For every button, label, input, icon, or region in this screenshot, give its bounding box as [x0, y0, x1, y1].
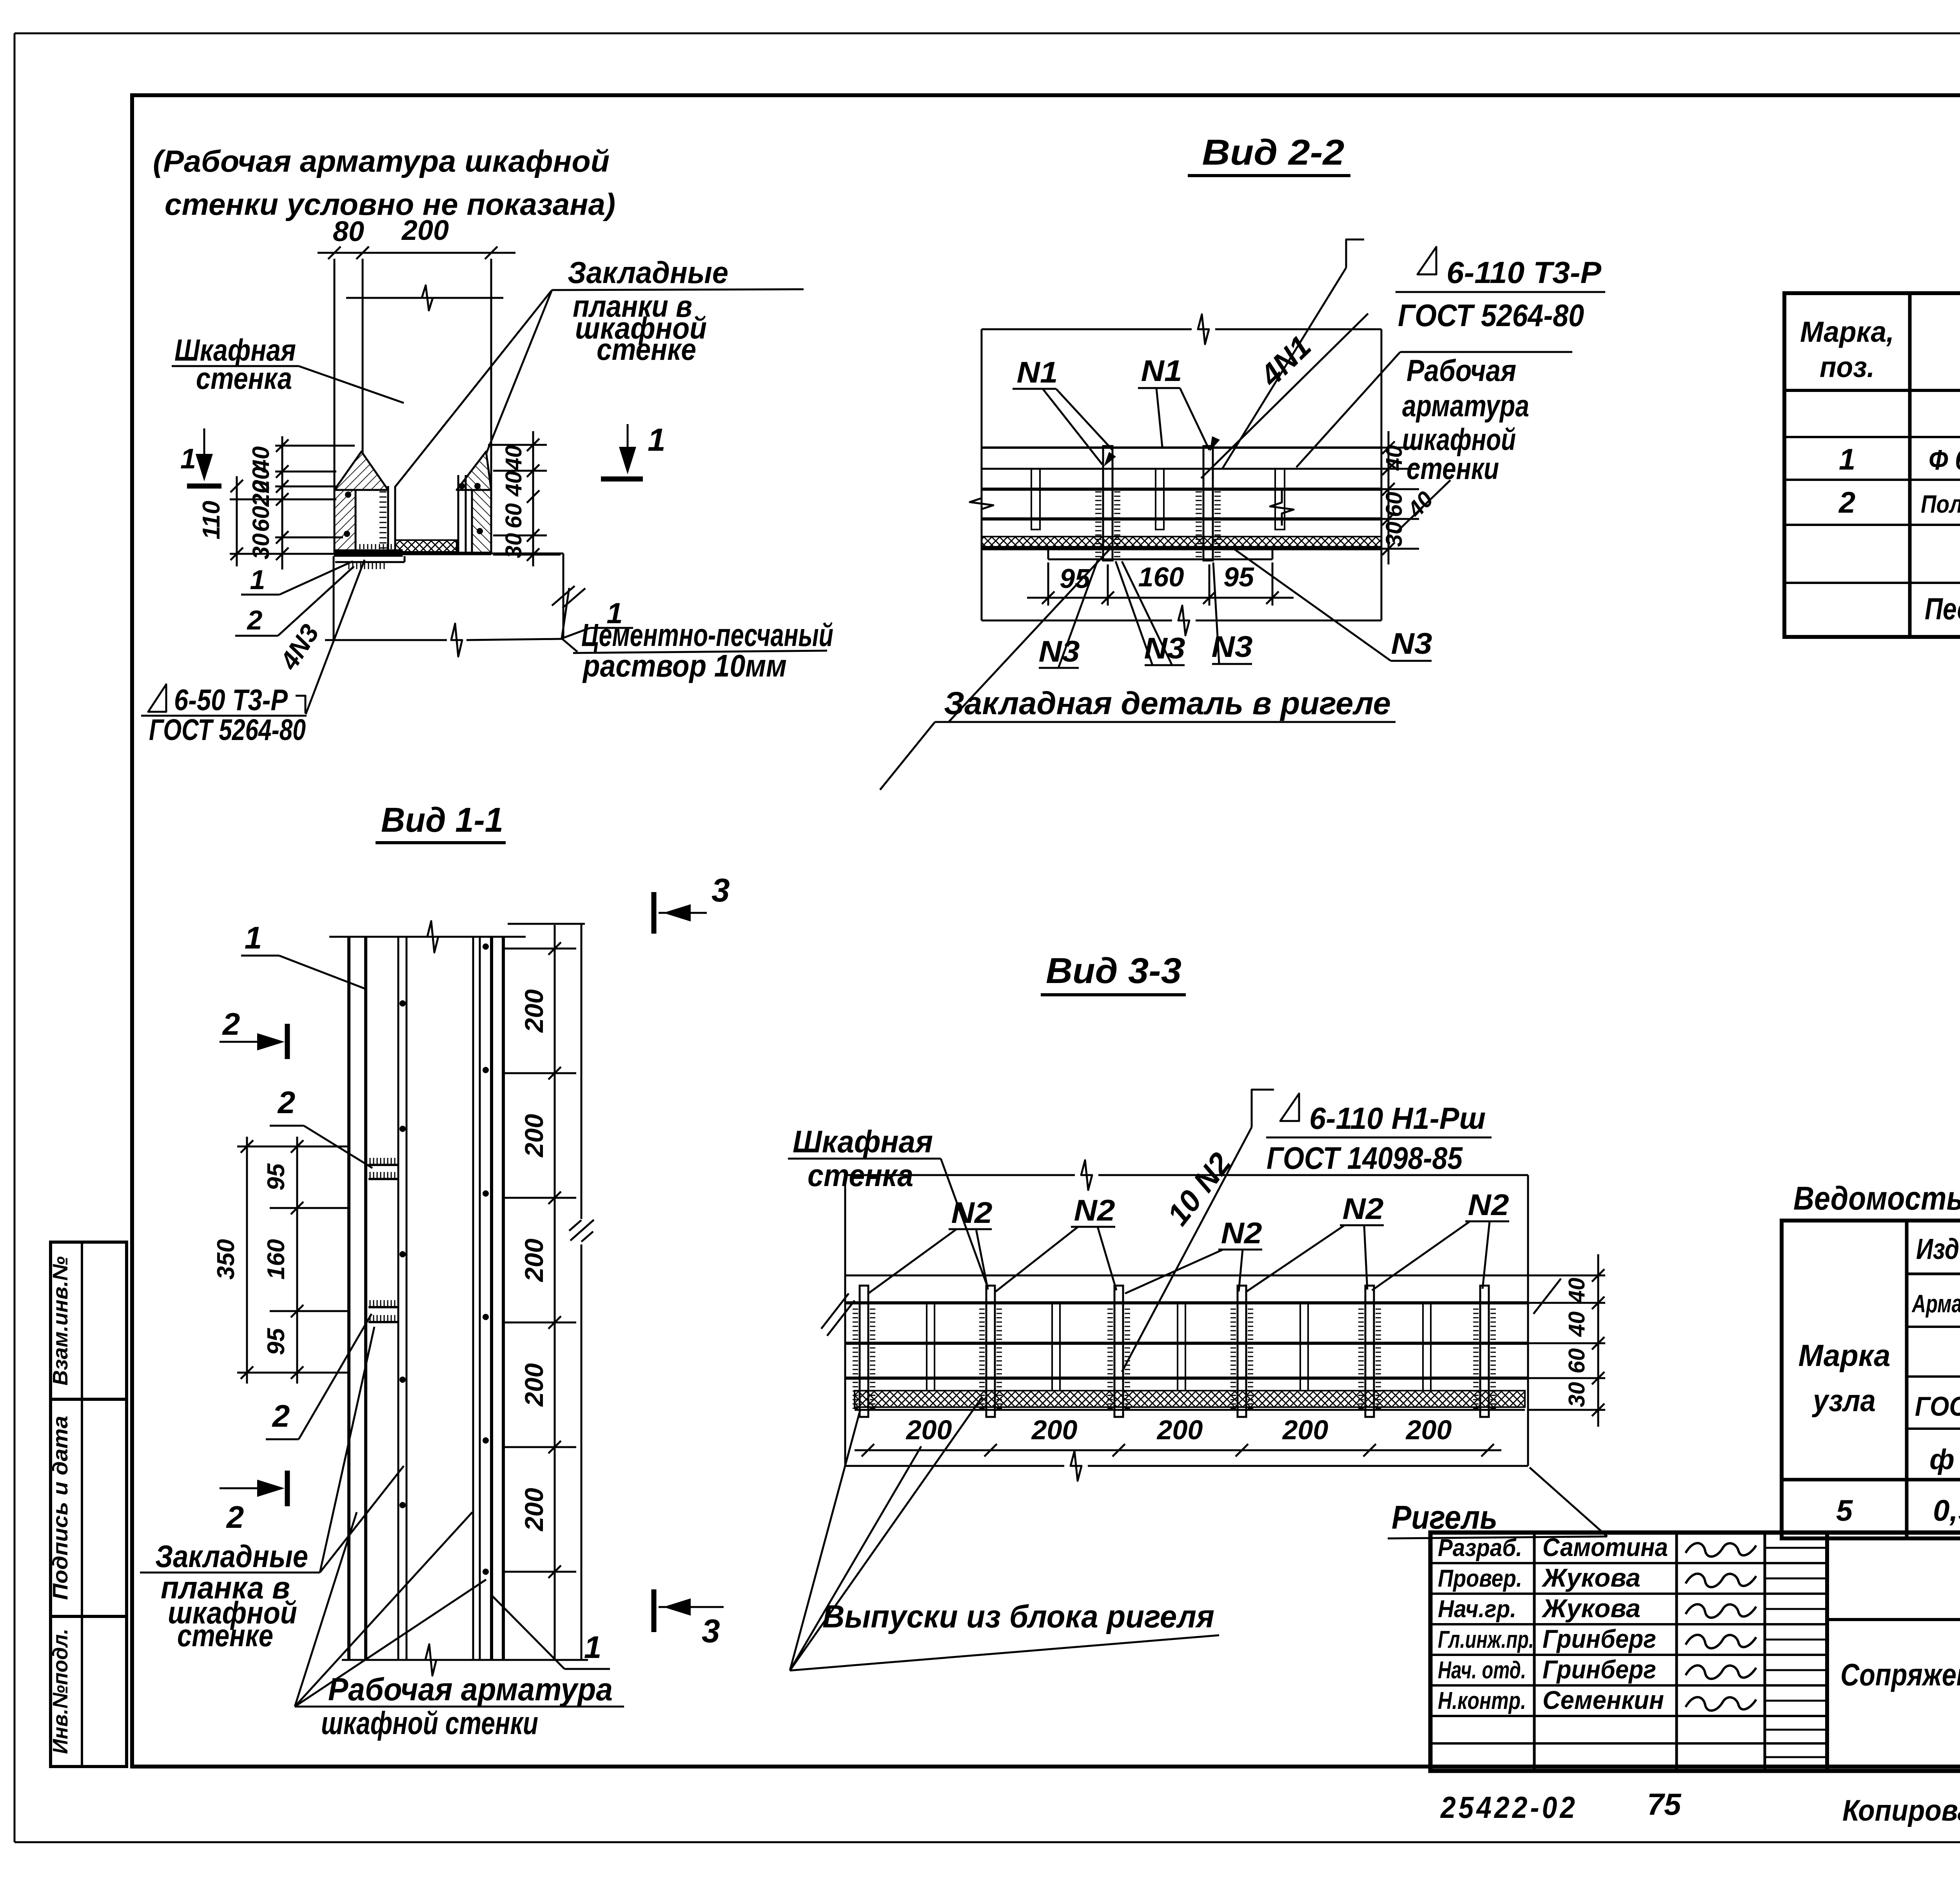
svg-text:поз.: поз.: [1820, 351, 1875, 383]
svg-text:2: 2: [272, 1398, 290, 1433]
svg-text:(Рабочая арматура шкафной: (Рабочая арматура шкафной: [153, 144, 610, 178]
svg-text:2: 2: [247, 605, 263, 635]
svg-text:160: 160: [263, 1239, 290, 1279]
svg-text:N2: N2: [1221, 1217, 1262, 1250]
svg-text:стенки: стенки: [1406, 451, 1499, 486]
svg-text:75: 75: [1647, 1787, 1682, 1821]
svg-text:1: 1: [1839, 443, 1855, 476]
svg-text:200: 200: [519, 1239, 548, 1282]
svg-text:Жукова: Жукова: [1541, 1594, 1641, 1623]
svg-text:30: 30: [1564, 1382, 1590, 1408]
svg-text:Цементно-песчаный: Цементно-песчаный: [581, 617, 833, 653]
svg-text:1: 1: [250, 564, 265, 595]
svg-text:Подпись и дата: Подпись и дата: [49, 1416, 72, 1600]
svg-text:200: 200: [519, 989, 548, 1033]
svg-text:Вид 1-1: Вид 1-1: [381, 800, 503, 839]
svg-text:60: 60: [1564, 1348, 1590, 1374]
svg-text:Ф 6А-I ГОСТ 5781-82, ℓ=1000: Ф 6А-I ГОСТ 5781-82, ℓ=1000: [1929, 444, 1960, 476]
svg-text:2: 2: [226, 1500, 244, 1534]
svg-text:арматура: арматура: [1402, 388, 1529, 423]
svg-text:3: 3: [702, 1612, 720, 1649]
svg-text:2: 2: [1838, 486, 1855, 519]
svg-text:ГОСТ 14098-85: ГОСТ 14098-85: [1267, 1141, 1463, 1175]
svg-text:Вид 2-2: Вид 2-2: [1202, 132, 1345, 172]
svg-text:стенка: стенка: [808, 1158, 913, 1193]
svg-text:Изделия арматурные: Изделия арматурные: [1916, 1233, 1960, 1265]
svg-text:N3: N3: [1391, 627, 1432, 660]
svg-text:Арматура класса: Арматура класса: [1911, 1290, 1960, 1318]
svg-text:Самотина: Самотина: [1543, 1533, 1668, 1562]
svg-text:350: 350: [212, 1239, 240, 1279]
svg-text:Нач.гр.: Нач.гр.: [1438, 1596, 1516, 1623]
svg-text:Марка: Марка: [1798, 1338, 1891, 1373]
svg-text:2: 2: [277, 1085, 296, 1120]
svg-text:стенки условно не показана): стенки условно не показана): [165, 187, 615, 221]
svg-text:N2: N2: [951, 1196, 993, 1230]
svg-text:стенка: стенка: [196, 361, 292, 395]
svg-text:200: 200: [906, 1415, 952, 1445]
svg-text:N2: N2: [1468, 1188, 1509, 1222]
svg-text:узла: узла: [1811, 1383, 1876, 1418]
svg-text:Закладная деталь в ригеле: Закладная деталь в ригеле: [944, 686, 1391, 721]
svg-text:N2: N2: [1343, 1192, 1384, 1226]
svg-text:ф 6: ф 6: [1929, 1444, 1960, 1475]
svg-text:1: 1: [648, 422, 666, 458]
svg-text:Рабочая арматура: Рабочая арматура: [328, 1672, 613, 1707]
svg-text:200: 200: [1405, 1415, 1452, 1445]
svg-text:Н.контр.: Н.контр.: [1438, 1687, 1526, 1714]
svg-text:Семенкин: Семенкин: [1543, 1685, 1664, 1714]
svg-text:80: 80: [333, 216, 364, 247]
svg-text:Гринберг: Гринберг: [1543, 1655, 1656, 1684]
svg-text:200: 200: [519, 1114, 548, 1158]
svg-text:Закладные: Закладные: [155, 1539, 308, 1574]
svg-text:3: 3: [711, 872, 730, 909]
svg-text:200: 200: [519, 1363, 548, 1407]
svg-text:Марка,: Марка,: [1800, 316, 1894, 348]
svg-text:Разраб.: Разраб.: [1438, 1534, 1522, 1562]
svg-text:200: 200: [401, 215, 449, 246]
svg-text:Шкафная: Шкафная: [793, 1124, 933, 1159]
svg-text:Выпуски из блока ригеля: Выпуски из блока ригеля: [822, 1599, 1214, 1634]
svg-text:ГОСТ 5264-80: ГОСТ 5264-80: [149, 713, 306, 747]
svg-text:30: 30: [248, 533, 274, 560]
svg-text:60: 60: [501, 503, 526, 529]
svg-text:N1: N1: [1017, 356, 1058, 389]
svg-text:стенке: стенке: [177, 1618, 273, 1653]
svg-text:40: 40: [1564, 1278, 1590, 1304]
svg-text:20: 20: [248, 481, 274, 507]
svg-text:200: 200: [1156, 1415, 1203, 1445]
svg-text:Ведомость расхода стали на 1: Ведомость расхода стали на 1 п.м. узла, …: [1793, 1180, 1960, 1217]
svg-text:200: 200: [1031, 1415, 1078, 1445]
svg-text:95: 95: [1223, 562, 1254, 592]
svg-text:40: 40: [1564, 1311, 1590, 1337]
svg-text:110: 110: [198, 501, 225, 540]
svg-text:Закладные: Закладные: [568, 255, 728, 290]
svg-text:Инв.№подл.: Инв.№подл.: [49, 1629, 72, 1754]
svg-text:6-110 Н1-Рш: 6-110 Н1-Рш: [1309, 1101, 1486, 1135]
svg-text:95: 95: [263, 1328, 290, 1355]
svg-text:Вид 3-3: Вид 3-3: [1046, 951, 1181, 991]
svg-text:1: 1: [245, 920, 262, 955]
svg-text:1: 1: [584, 1630, 602, 1665]
svg-text:ГОСТ 5781-82: ГОСТ 5781-82: [1915, 1391, 1960, 1422]
svg-text:стенке: стенке: [597, 332, 696, 366]
svg-text:95: 95: [263, 1163, 290, 1190]
svg-text:95: 95: [1060, 563, 1091, 594]
svg-text:40: 40: [501, 471, 526, 497]
svg-text:6-50 Т3-Р: 6-50 Т3-Р: [174, 684, 288, 717]
svg-text:Сопряжение шкафной стенки: Сопряжение шкафной стенки: [1840, 1657, 1960, 1692]
svg-text:ГОСТ 5264-80: ГОСТ 5264-80: [1398, 298, 1584, 333]
svg-text:раствор 10мм: раствор 10мм: [582, 648, 787, 683]
svg-text:0,9: 0,9: [1933, 1494, 1960, 1527]
svg-text:Провер.: Провер.: [1438, 1565, 1522, 1592]
svg-text:5: 5: [1836, 1494, 1853, 1527]
svg-text:Жукова: Жукова: [1541, 1563, 1641, 1592]
svg-text:200: 200: [519, 1488, 548, 1532]
svg-text:N2: N2: [1074, 1194, 1115, 1227]
svg-text:шкафной стенки: шкафной стенки: [321, 1705, 538, 1741]
svg-text:Взам.инв.№: Взам.инв.№: [49, 1256, 72, 1386]
svg-text:25422-02: 25422-02: [1440, 1790, 1578, 1825]
svg-text:200: 200: [1282, 1415, 1328, 1445]
svg-text:30: 30: [501, 533, 526, 559]
svg-text:Гринберг: Гринберг: [1543, 1624, 1656, 1653]
svg-text:Гл.инж.пр.: Гл.инж.пр.: [1438, 1626, 1534, 1653]
svg-text:Полоса-10×50 ГОСТ 103-76, ℓ=11: Полоса-10×50 ГОСТ 103-76, ℓ=110: [1921, 490, 1960, 518]
svg-text:1: 1: [180, 443, 196, 475]
svg-text:60: 60: [248, 506, 274, 532]
svg-text:Ригель: Ригель: [1392, 1499, 1497, 1536]
svg-text:Песчаный бетон В 25: Песчаный бетон В 25: [1925, 591, 1960, 626]
svg-text:N1: N1: [1141, 354, 1182, 388]
svg-text:Нач. отд.: Нач. отд.: [1438, 1657, 1526, 1684]
svg-text:2: 2: [222, 1007, 240, 1041]
svg-text:40: 40: [501, 445, 526, 471]
svg-text:Рабочая: Рабочая: [1406, 353, 1516, 388]
svg-text:6-110 Т3-Р: 6-110 Т3-Р: [1446, 255, 1602, 290]
svg-text:Копировал:: Копировал:: [1842, 1794, 1960, 1827]
svg-text:160: 160: [1138, 562, 1184, 592]
